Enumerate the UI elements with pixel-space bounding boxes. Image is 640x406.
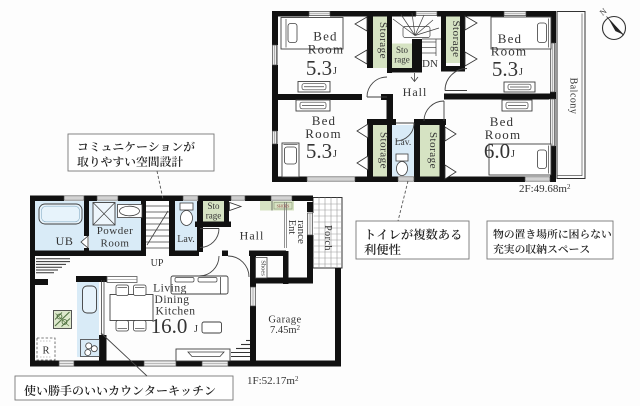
svg-text:5.3: 5.3: [306, 56, 332, 80]
svg-text:Hall: Hall: [403, 85, 428, 99]
svg-text:Storage: Storage: [450, 20, 462, 57]
svg-text:Lav.: Lav.: [395, 138, 412, 148]
svg-text:Living: Living: [153, 283, 187, 295]
svg-text:Lav.: Lav.: [177, 234, 194, 245]
svg-text:Sto: Sto: [396, 45, 409, 55]
svg-text:Hall: Hall: [240, 229, 265, 243]
svg-text:Storage: Storage: [378, 132, 390, 169]
svg-text:J: J: [511, 149, 515, 160]
svg-text:7.45m2: 7.45m2: [270, 324, 301, 336]
svg-text:Room: Room: [308, 42, 345, 57]
svg-text:16.0: 16.0: [151, 314, 188, 338]
svg-text:J: J: [519, 67, 523, 78]
svg-text:rage: rage: [394, 55, 410, 65]
svg-text:2F:49.68m2: 2F:49.68m2: [519, 183, 571, 195]
svg-text:Dining: Dining: [155, 294, 190, 306]
svg-text:rance: rance: [295, 220, 307, 244]
svg-text:Porch: Porch: [322, 225, 333, 251]
svg-text:J: J: [333, 149, 337, 160]
svg-text:SHOES: SHOES: [277, 204, 290, 209]
svg-text:Storage: Storage: [427, 132, 439, 169]
svg-text:6.0: 6.0: [484, 139, 510, 163]
svg-text:Shoes: Shoes: [260, 260, 267, 276]
svg-text:rage: rage: [206, 211, 222, 221]
svg-text:J: J: [333, 66, 337, 77]
svg-text:1F:52.17m2: 1F:52.17m2: [247, 375, 299, 387]
svg-text:5.3: 5.3: [306, 139, 332, 163]
svg-text:Balcony: Balcony: [568, 78, 579, 115]
svg-text:DN: DN: [422, 58, 438, 70]
svg-text:Sto: Sto: [207, 201, 220, 211]
svg-text:5.3: 5.3: [492, 57, 518, 81]
svg-text:Powder: Powder: [97, 225, 134, 237]
svg-text:J: J: [194, 324, 198, 335]
svg-text:Storage: Storage: [377, 22, 389, 59]
svg-text:Room: Room: [101, 238, 130, 250]
svg-text:UP: UP: [151, 258, 164, 269]
svg-text:R: R: [42, 346, 49, 357]
svg-text:UB: UB: [56, 234, 74, 248]
